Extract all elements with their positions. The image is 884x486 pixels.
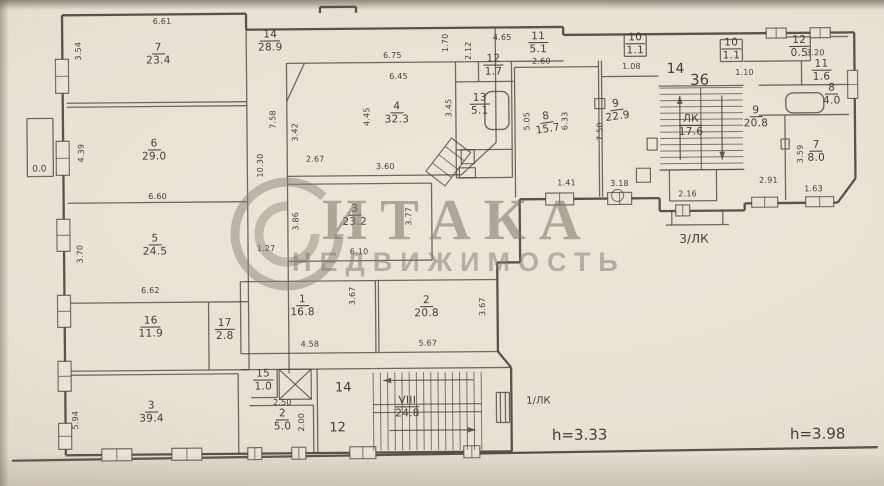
dimension-label: 3.77 — [404, 207, 413, 226]
room-10-label: 101.1 — [721, 37, 741, 61]
dimension-label: 2.00 — [297, 413, 306, 432]
room-2-label: 25.0 — [274, 408, 292, 432]
room-area: 1.1 — [626, 44, 644, 56]
dimension-label: 3.18 — [610, 179, 629, 188]
room-8-label: 84.0 — [823, 83, 841, 107]
room-number: 14 — [260, 29, 280, 41]
room-area: 11.9 — [138, 327, 163, 339]
room-number: 12 — [483, 53, 503, 65]
room-number: 4 — [390, 101, 403, 113]
room-area: 24.8 — [395, 407, 420, 419]
dimension-label: 10.30 — [256, 154, 265, 178]
dimension-label: 2.91 — [759, 176, 778, 185]
annotation-label: 0.0 — [32, 164, 46, 174]
room-area: 32.3 — [385, 113, 410, 125]
dimension-label: 7.58 — [268, 110, 277, 129]
room-number: 15 — [253, 368, 273, 380]
room-area: 16.8 — [290, 306, 315, 318]
dimension-label: 5.94 — [71, 411, 80, 430]
dimension-label: 6.45 — [389, 72, 408, 81]
room-area: 1.1 — [723, 49, 741, 61]
room-area: 8.0 — [807, 152, 825, 164]
dimension-label: 3.60 — [376, 162, 395, 171]
room-11-label: 111.6 — [811, 59, 831, 83]
room-number: 11 — [528, 31, 548, 43]
floor-plan: 723.4629.0524.51611.9172.8339.41428.9432… — [0, 0, 884, 486]
room-10-label: 101.1 — [625, 32, 645, 56]
dimension-label: 2.50 — [273, 398, 292, 407]
room-area: 24.5 — [143, 245, 168, 257]
dimension-label: 4.39 — [77, 144, 86, 163]
dimension-label: 6.60 — [148, 192, 167, 201]
room-2-label: 220.8 — [414, 295, 439, 319]
room-number: VIII — [395, 395, 419, 407]
room-area: 5.1 — [471, 105, 489, 117]
annotation-label: 14 — [335, 380, 352, 395]
room-area: 39.4 — [139, 412, 164, 424]
annotation-label: 1/ЛК — [526, 396, 550, 407]
room-area: 29.0 — [142, 150, 167, 162]
dimension-label: 6.62 — [141, 286, 160, 295]
room-area: 23.2 — [342, 216, 367, 228]
room-area: 28.9 — [258, 41, 283, 53]
room-number: 3 — [348, 204, 361, 216]
dimension-label: 3.54 — [74, 42, 83, 61]
room-9-label: 922.9 — [603, 97, 631, 124]
annotation-label: 12 — [329, 420, 346, 435]
room-area: 23.4 — [146, 54, 171, 66]
room-8-label: 815.7 — [533, 109, 561, 136]
room-number: 8 — [825, 83, 838, 95]
room-area: 1.0 — [254, 380, 272, 392]
dimension-label: 1.08 — [622, 62, 641, 71]
dimension-label: 3.20 — [806, 48, 825, 57]
room-number: 13 — [470, 93, 490, 105]
dimension-label: 3.59 — [796, 145, 805, 164]
room-5-label: 524.5 — [143, 233, 168, 257]
plan-labels: 723.4629.0524.51611.9172.8339.41428.9432… — [0, 0, 884, 486]
dimension-label: 3.67 — [348, 286, 357, 305]
dimension-label: 7.50 — [595, 122, 604, 141]
room-area: 20.8 — [414, 307, 439, 319]
dimension-label: 6.75 — [383, 51, 402, 60]
room-7-label: 78.0 — [807, 140, 825, 164]
dimension-label: 4.65 — [493, 33, 512, 42]
room-11-label: 115.1 — [528, 31, 548, 55]
dimension-label: 3.86 — [291, 212, 300, 231]
annotation-label: 3/ЛК — [679, 232, 708, 246]
room-number: 3 — [145, 400, 158, 412]
room-6-label: 629.0 — [142, 138, 167, 162]
dimension-label: 1.41 — [557, 178, 576, 187]
floor-plan-photo: 723.4629.0524.51611.9172.8339.41428.9432… — [0, 0, 884, 486]
annotation-label: h=3.33 — [552, 426, 608, 444]
room-number: 11 — [811, 59, 831, 71]
dimension-label: 1.27 — [257, 244, 276, 253]
annotation-label: h=3.98 — [790, 424, 846, 442]
room-number: 1 — [296, 294, 309, 306]
room-number: 6 — [148, 138, 161, 150]
room-9-label: 920.8 — [744, 105, 769, 129]
room-area: 5.1 — [529, 43, 547, 55]
room-area: 22.9 — [605, 109, 631, 125]
dimension-label: 6.33 — [560, 112, 569, 131]
room-area: 20.8 — [744, 117, 769, 129]
room-area: 5.0 — [274, 420, 292, 432]
annotation-label: 14 — [667, 61, 685, 77]
room-VIII-label: VIII24.8 — [395, 395, 420, 419]
dimension-label: 3.42 — [290, 123, 299, 142]
room-17-label: 172.8 — [215, 318, 235, 342]
dimension-label: 2.16 — [678, 189, 697, 198]
dimension-label: 5.67 — [419, 339, 438, 348]
room-7-label: 723.4 — [146, 42, 171, 66]
dimension-label: 4.58 — [301, 340, 320, 349]
dimension-label: 2.60 — [532, 57, 551, 66]
dimension-label: 1.10 — [735, 68, 754, 77]
room-1-label: 116.8 — [290, 294, 315, 318]
annotation-label: 36 — [690, 71, 709, 89]
dimension-label: 1.63 — [804, 184, 823, 193]
dimension-label: 6.61 — [153, 17, 172, 26]
room-number: 12 — [789, 35, 809, 47]
room-number: 10 — [721, 37, 741, 49]
room-number: 16 — [141, 315, 161, 327]
room-3-label: 323.2 — [342, 204, 367, 228]
room-area: 2.8 — [216, 330, 234, 342]
dimension-label: 2.12 — [464, 41, 473, 60]
room-number: 5 — [148, 233, 161, 245]
room-number: 7 — [152, 42, 165, 54]
room-14-label: 1428.9 — [258, 29, 283, 53]
room-3-label: 339.4 — [139, 400, 164, 424]
room-number: 7 — [810, 140, 823, 152]
room-4-label: 432.3 — [384, 101, 409, 125]
dimension-label: 3.67 — [478, 297, 487, 316]
room-area: 17.6 — [679, 126, 704, 138]
room-number: 9 — [749, 105, 762, 117]
room-ЛК-label: ЛК17.6 — [679, 114, 704, 138]
room-area: 4.0 — [823, 95, 841, 107]
room-16-label: 1611.9 — [138, 315, 163, 339]
dimension-label: 6.10 — [350, 247, 369, 256]
room-area: 15.7 — [535, 121, 561, 137]
dimension-label: 3.70 — [76, 245, 85, 264]
room-number: 2 — [276, 408, 289, 420]
room-number: ЛК — [680, 114, 702, 126]
room-12-label: 121.7 — [483, 53, 503, 77]
room-15-label: 151.0 — [253, 368, 273, 392]
room-area: 1.7 — [485, 65, 503, 77]
room-number: 17 — [215, 318, 235, 330]
room-number: 2 — [420, 295, 433, 307]
room-13-label: 135.1 — [470, 93, 490, 117]
dimension-label: 3.45 — [444, 99, 453, 118]
dimension-label: 5.05 — [522, 112, 531, 131]
room-number: 10 — [625, 32, 645, 44]
dimension-label: 2.67 — [306, 155, 325, 164]
dimension-label: 1.70 — [441, 34, 450, 53]
dimension-label: 4.45 — [362, 107, 371, 126]
